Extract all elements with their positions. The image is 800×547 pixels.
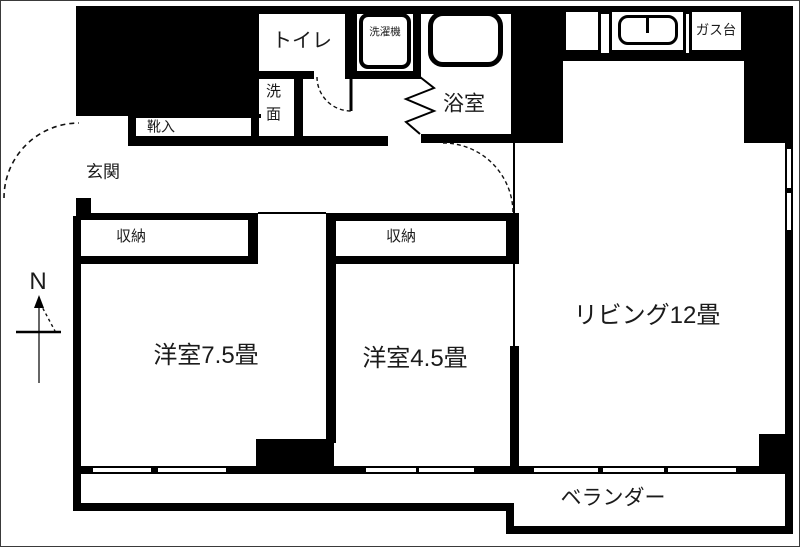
wall-shoe-bottom <box>128 136 303 146</box>
washing-machine-box <box>359 13 411 69</box>
toilet-door-arc <box>317 77 351 111</box>
window <box>93 468 151 472</box>
window <box>419 468 474 472</box>
wall-storage1-top <box>76 213 258 220</box>
window <box>366 468 416 472</box>
wall-toilet-right <box>345 6 357 79</box>
living-door-arc <box>443 143 513 213</box>
wall-washer-divider <box>413 6 421 79</box>
wall-washer-bottom <box>353 71 421 79</box>
wall-storage2-top <box>326 213 519 221</box>
wall-block-top-right <box>744 6 793 143</box>
window <box>534 468 598 472</box>
wall-veranda-bottom-left <box>73 503 514 511</box>
wall-storage2-bottom <box>326 256 519 264</box>
wall-living-west <box>510 346 519 468</box>
window <box>787 193 791 230</box>
wall-bath-bottom <box>421 134 563 143</box>
window <box>668 468 736 472</box>
door-leaf-living <box>513 143 515 213</box>
floor-plan: トイレ 洗濯機 浴室 ガス台 玄関 靴入 洗面 収納 収納 洋室7.5畳 洋室4… <box>0 0 800 547</box>
sink-faucet-line <box>646 15 649 33</box>
window <box>603 468 664 472</box>
wall-block-bath-right <box>511 6 563 143</box>
door-opening-line-room75 <box>258 212 326 214</box>
bathtub <box>428 11 503 67</box>
window <box>787 149 791 188</box>
partition-line-room45-living <box>513 264 515 346</box>
label-shoe-cabinet: 靴入 <box>147 119 175 134</box>
wall-kitchen-counter-bottom <box>561 53 746 61</box>
wall-storage1-bottom <box>76 256 258 264</box>
wall-storage1-right <box>248 213 258 264</box>
kitchen-counter <box>563 9 601 53</box>
label-entrance: 玄関 <box>86 164 120 183</box>
wall-toilet-bottom <box>259 71 314 79</box>
bathroom-accordion-door <box>406 77 434 134</box>
label-western-room-4-5: 洋室4.5畳 <box>362 346 467 372</box>
wall-block-top-left <box>76 6 259 116</box>
label-bathroom: 浴室 <box>443 92 485 115</box>
entrance-door-arc <box>4 123 79 198</box>
label-storage-2: 収納 <box>386 229 416 246</box>
compass-arrow <box>16 295 61 383</box>
wall-storage2-right <box>506 213 519 264</box>
label-washbasin: 洗面 <box>265 80 282 127</box>
label-gas-stove: ガス台 <box>696 24 737 39</box>
label-western-room-7-5: 洋室7.5畳 <box>153 343 258 369</box>
label-living-room: リビング12畳 <box>574 303 721 329</box>
label-storage-1: 収納 <box>116 229 146 246</box>
window <box>158 468 226 472</box>
label-toilet: トイレ <box>272 30 332 52</box>
label-veranda: ベランダー <box>561 486 666 509</box>
wall-veranda-bottom-right <box>506 526 793 534</box>
wall-vestibule-bottom <box>303 136 388 146</box>
wall-room-divider <box>326 213 336 443</box>
label-washing-machine: 洗濯機 <box>369 27 401 39</box>
wall-washbasin-right <box>294 74 303 139</box>
label-compass-north: N <box>29 269 46 295</box>
